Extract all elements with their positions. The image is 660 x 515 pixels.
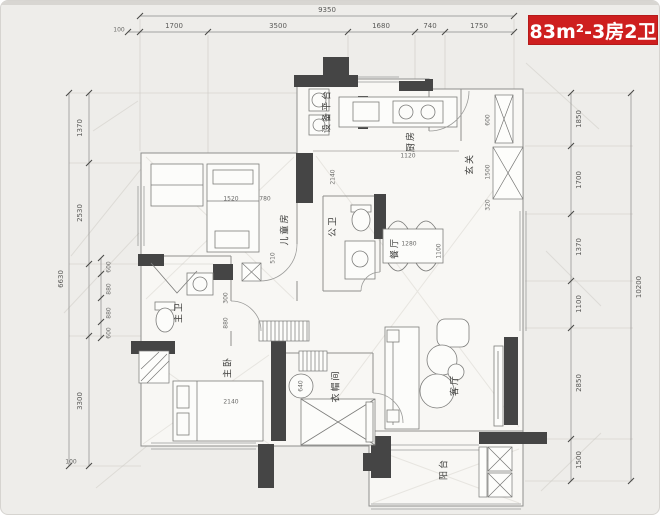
dim-int-2140b: 2140 — [223, 399, 238, 406]
dim-top-s2: 3500 — [269, 22, 287, 30]
dim-left-corner: 100 — [65, 459, 76, 466]
room-label-equipment-platform: 设备平台 — [320, 89, 333, 133]
dim-right-s6: 1500 — [575, 451, 583, 469]
floorplan-drawing — [1, 1, 660, 515]
dim-top-s1: 1700 — [165, 22, 183, 30]
room-label-balcony: 阳台 — [437, 458, 450, 480]
room-label-kids-room: 儿童房 — [278, 212, 291, 245]
room-label-master-bedroom: 主卧 — [221, 356, 234, 378]
dim-left-sub3: 880 — [106, 307, 113, 318]
floorplan-canvas: 9350 1700 3500 1680 740 1750 100 1850 17… — [0, 0, 660, 515]
room-label-master-bath: 主卫 — [172, 301, 185, 323]
dim-int-1100: 1100 — [436, 243, 443, 258]
room-label-guest-bath: 公卫 — [326, 215, 339, 237]
dim-right-overall: 10200 — [635, 276, 643, 298]
dim-int-780: 780 — [259, 196, 270, 203]
room-label-dining: 餐厅 — [388, 237, 401, 259]
dim-top-overall: 9350 — [318, 6, 336, 14]
dim-left-s2: 2530 — [76, 204, 84, 222]
dim-top-s4: 740 — [423, 22, 436, 30]
dim-right-s5: 2850 — [575, 374, 583, 392]
room-label-living: 客厅 — [448, 374, 461, 396]
dim-int-320: 320 — [485, 199, 492, 210]
dim-top-corner: 100 — [113, 27, 124, 34]
dim-int-300: 300 — [223, 292, 230, 303]
dim-int-640: 640 — [298, 380, 305, 391]
dim-int-600: 600 — [485, 114, 492, 125]
dim-left-s1: 1370 — [76, 119, 84, 137]
room-label-cloakroom: 衣帽间 — [329, 369, 342, 402]
dim-right-s3: 1370 — [575, 238, 583, 256]
dim-top-s5: 1750 — [470, 22, 488, 30]
dim-right-s4: 1100 — [575, 295, 583, 313]
dim-int-1280: 1280 — [401, 241, 416, 248]
room-label-entry: 玄关 — [463, 153, 476, 175]
dim-int-1520: 1520 — [223, 196, 238, 203]
dim-right-s1: 1850 — [575, 110, 583, 128]
dim-int-1120: 1120 — [400, 153, 415, 160]
dim-left-sub1: 600 — [106, 261, 113, 272]
dim-left-sub4: 600 — [106, 327, 113, 338]
dim-left-overall: 6630 — [57, 270, 65, 288]
dim-int-880: 880 — [223, 317, 230, 328]
dim-int-1500: 1500 — [485, 164, 492, 179]
dim-int-2140a: 2140 — [330, 169, 337, 184]
room-label-kitchen: 厨房 — [404, 130, 417, 152]
dim-left-s3: 3300 — [76, 392, 84, 410]
dim-top-s3: 1680 — [372, 22, 390, 30]
dim-right-s2: 1700 — [575, 171, 583, 189]
area-badge: 83m²-3房2卫 — [528, 15, 658, 45]
dim-int-510: 510 — [270, 252, 277, 263]
dim-left-sub2: 880 — [106, 283, 113, 294]
